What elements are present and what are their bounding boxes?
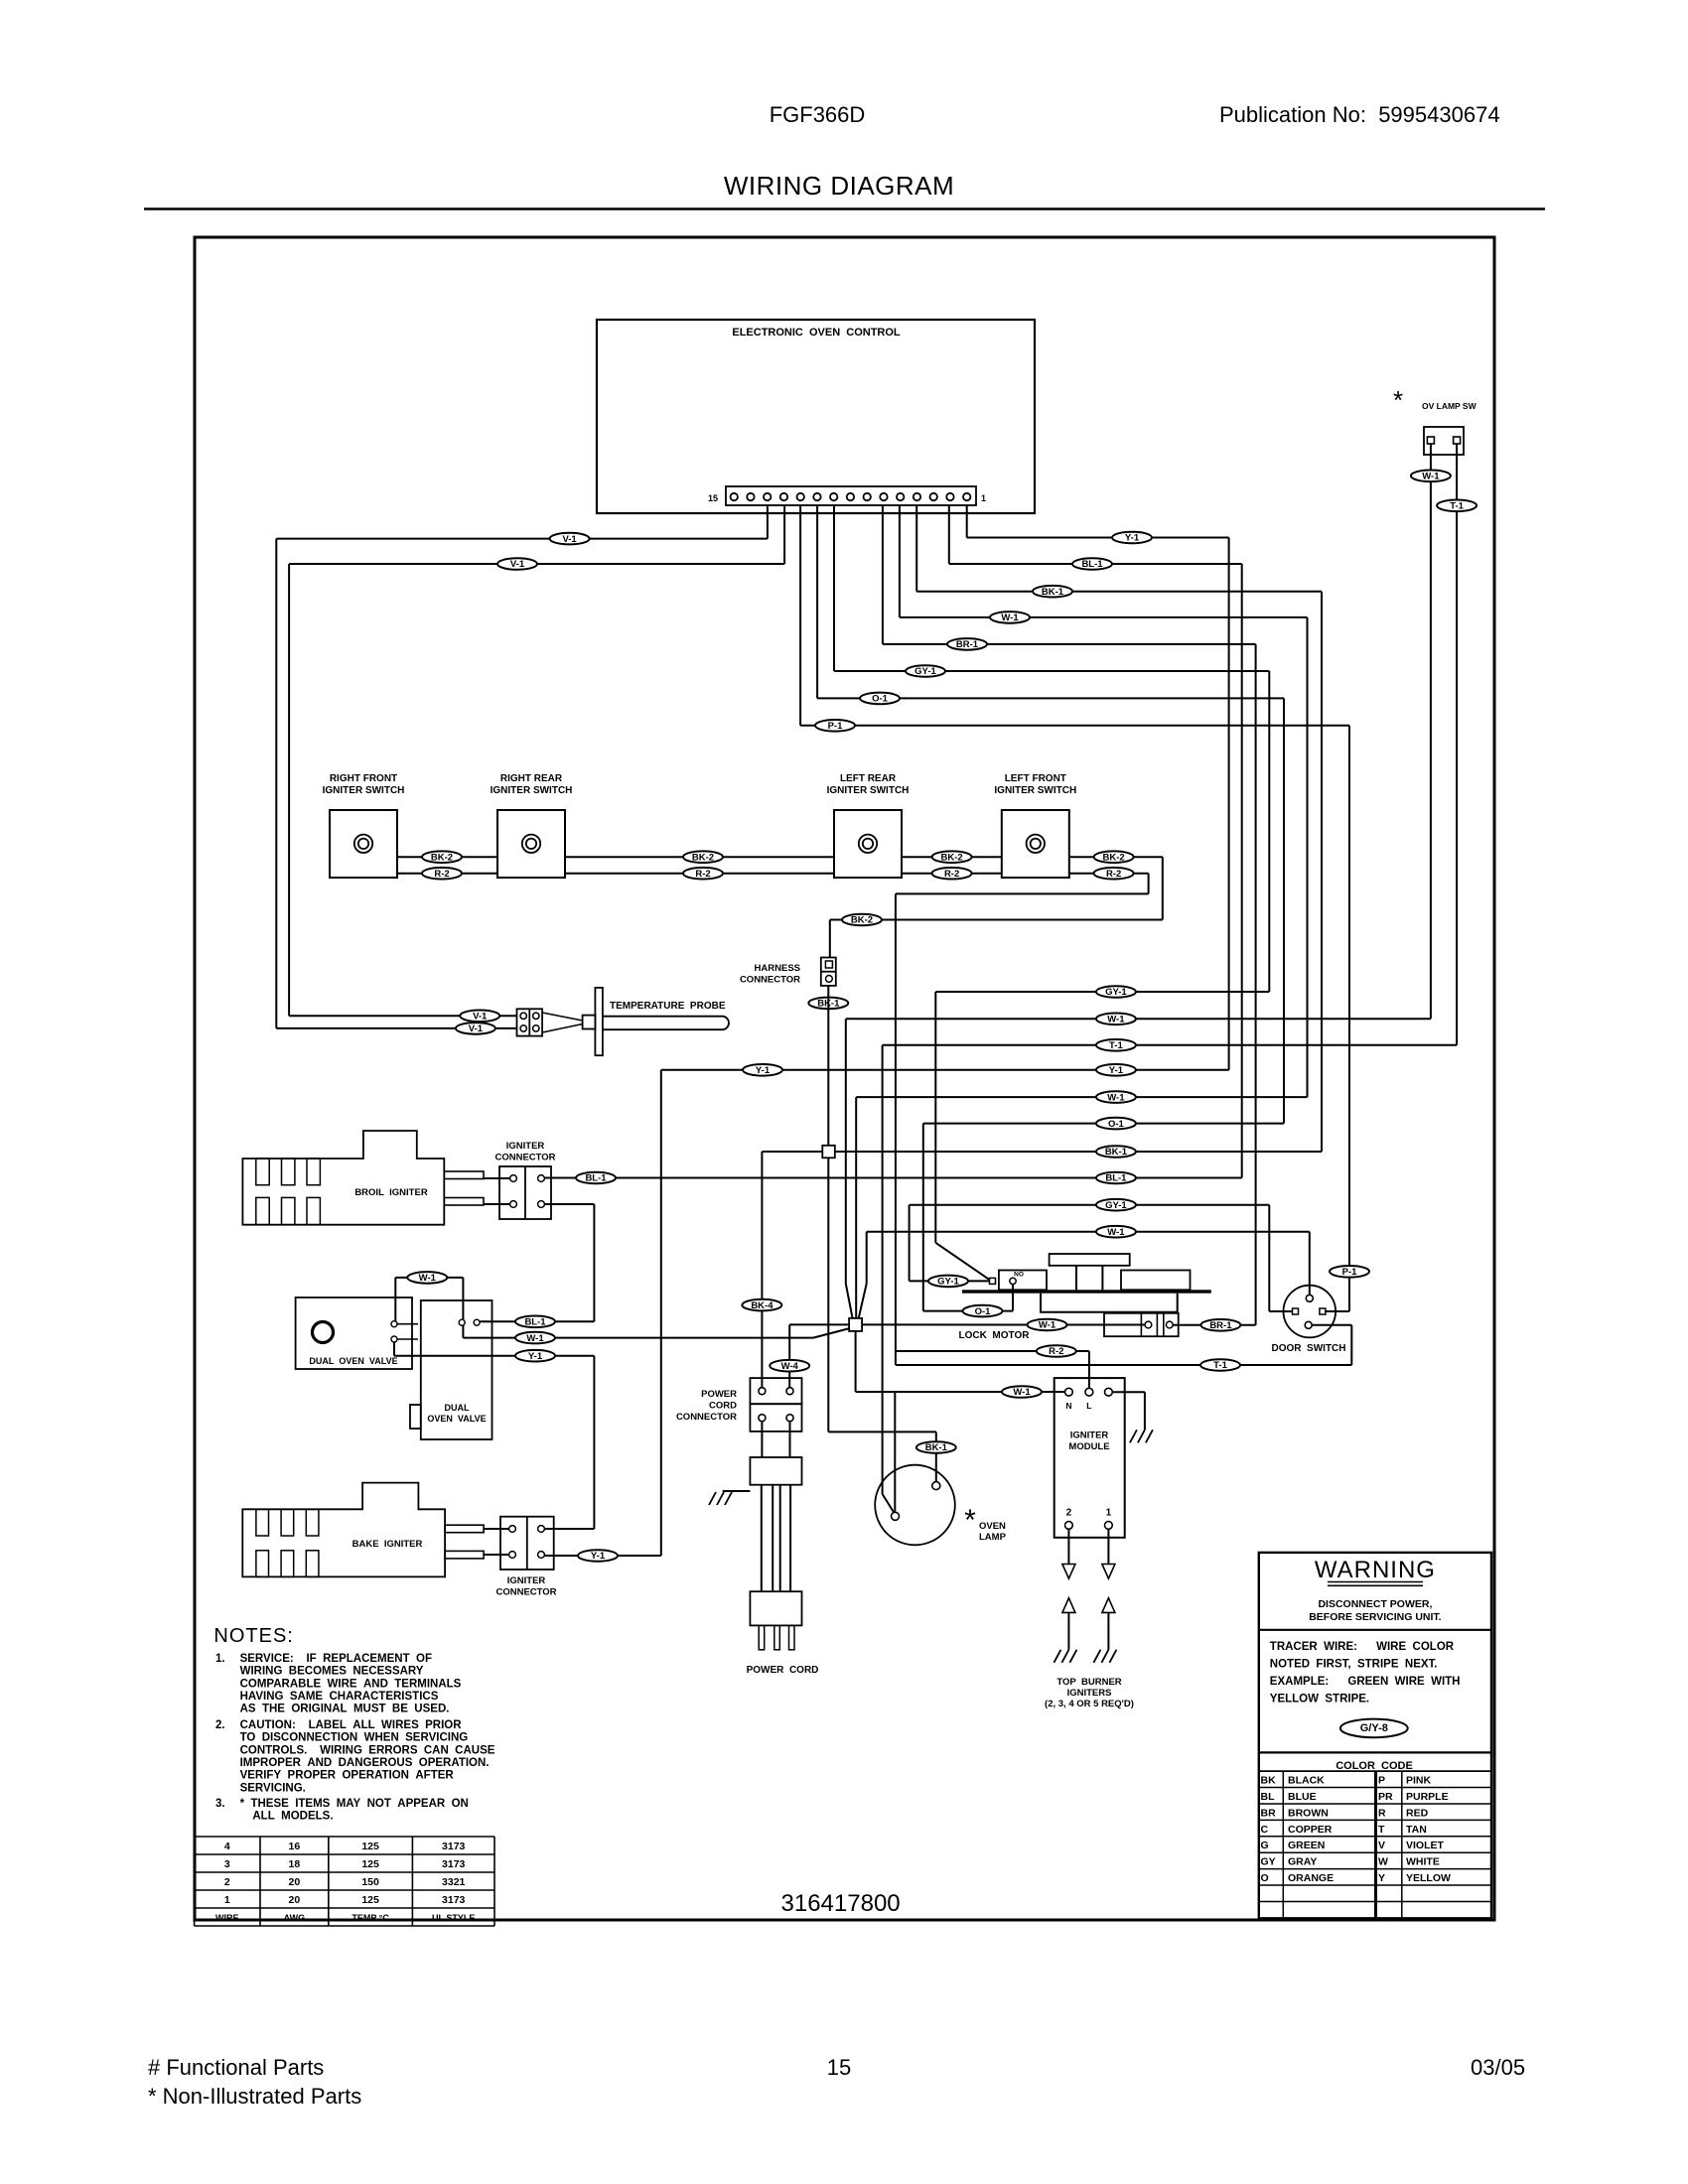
svg-text:1: 1 <box>981 493 986 503</box>
svg-text:Y: Y <box>1378 1872 1385 1884</box>
svg-text:* Non-Illustrated Parts: * Non-Illustrated Parts <box>148 2084 361 2109</box>
svg-text:BK-1: BK-1 <box>1042 587 1064 598</box>
svg-text:P-1: P-1 <box>1342 1267 1358 1278</box>
svg-text:TOP BURNER: TOP BURNER <box>1056 1677 1121 1688</box>
svg-text:TRACER WIRE: WIRE COLOR: TRACER WIRE: WIRE COLOR <box>1270 1641 1455 1653</box>
svg-text:O-1: O-1 <box>975 1306 992 1317</box>
svg-text:BK-2: BK-2 <box>851 915 873 926</box>
svg-text:W-1: W-1 <box>1039 1320 1056 1331</box>
svg-text:G/Y-8: G/Y-8 <box>1360 1722 1388 1734</box>
svg-text:20: 20 <box>289 1894 301 1906</box>
svg-text:R-2: R-2 <box>434 869 449 880</box>
svg-text:IGNITER: IGNITER <box>506 1141 545 1152</box>
svg-text:ORANGE: ORANGE <box>1288 1872 1334 1884</box>
svg-text:TAN: TAN <box>1406 1824 1427 1836</box>
svg-text:VIOLET: VIOLET <box>1406 1840 1445 1851</box>
svg-text:T: T <box>1378 1824 1385 1836</box>
svg-text:V-1: V-1 <box>510 559 525 570</box>
svg-text:Y-1: Y-1 <box>528 1351 543 1362</box>
svg-text:C: C <box>1261 1824 1269 1836</box>
svg-text:ALL MODELS.: ALL MODELS. <box>240 1811 334 1823</box>
svg-text:CONNECTOR: CONNECTOR <box>676 1412 737 1423</box>
svg-text:T-1: T-1 <box>1109 1040 1123 1051</box>
svg-text:P-1: P-1 <box>828 721 844 732</box>
svg-text:BK: BK <box>1261 1775 1277 1787</box>
svg-text:R-2: R-2 <box>1106 869 1121 880</box>
svg-text:* THESE ITEMS MAY NOT APP: * THESE ITEMS MAY NOT APPEAR ON <box>240 1798 469 1810</box>
svg-text:T-1: T-1 <box>1213 1360 1227 1371</box>
svg-text:W: W <box>1378 1856 1388 1868</box>
svg-text:NO: NO <box>1014 1272 1024 1279</box>
svg-text:BL-1: BL-1 <box>524 1317 546 1328</box>
svg-text:BK-2: BK-2 <box>692 852 714 863</box>
svg-text:N: N <box>1065 1401 1071 1411</box>
svg-text:2: 2 <box>224 1876 230 1888</box>
svg-text:GY-1: GY-1 <box>1105 987 1127 998</box>
svg-text:L: L <box>1086 1401 1091 1411</box>
svg-text:R-2: R-2 <box>1049 1346 1063 1357</box>
svg-text:LOCK MOTOR: LOCK MOTOR <box>959 1330 1031 1341</box>
svg-text:CORD: CORD <box>709 1401 737 1412</box>
svg-text:(2, 3, 4 OR 5 REQ'D): (2, 3, 4 OR 5 REQ'D) <box>1045 1699 1134 1709</box>
svg-text:LAMP: LAMP <box>979 1532 1007 1543</box>
svg-text:BROIL IGNITER: BROIL IGNITER <box>354 1187 428 1198</box>
svg-text:IGNITER: IGNITER <box>1070 1431 1109 1441</box>
svg-text:*: * <box>964 1504 976 1537</box>
svg-text:WIRE: WIRE <box>215 1913 239 1923</box>
svg-text:OVEN VALVE: OVEN VALVE <box>427 1414 486 1424</box>
svg-text:Y-1: Y-1 <box>1109 1065 1124 1076</box>
svg-text:IGNITER SWITCH: IGNITER SWITCH <box>491 785 573 796</box>
svg-text:BK-2: BK-2 <box>941 852 963 863</box>
svg-text:BROWN: BROWN <box>1288 1807 1329 1819</box>
svg-text:3321: 3321 <box>442 1876 466 1888</box>
svg-text:UL STYLE: UL STYLE <box>432 1913 475 1923</box>
svg-text:W-1: W-1 <box>526 1333 544 1344</box>
svg-text:BK-1: BK-1 <box>925 1442 948 1453</box>
svg-text:1: 1 <box>224 1894 230 1906</box>
svg-text:W-1: W-1 <box>1107 1092 1125 1103</box>
svg-text:BR-1: BR-1 <box>1209 1320 1232 1331</box>
svg-text:HAVING SAME CHARACTERISTICS: HAVING SAME CHARACTERISTICS <box>240 1691 439 1703</box>
svg-text:R: R <box>1378 1807 1386 1819</box>
svg-text:BR-1: BR-1 <box>956 639 979 650</box>
svg-text:HARNESS: HARNESS <box>755 963 800 974</box>
svg-text:125: 125 <box>361 1894 379 1906</box>
svg-text:3173: 3173 <box>442 1858 466 1870</box>
svg-text:BK-1: BK-1 <box>1105 1147 1128 1158</box>
svg-text:LEFT FRONT: LEFT FRONT <box>1005 773 1066 784</box>
svg-text:DISCONNECT POWER,: DISCONNECT POWER, <box>1318 1598 1432 1610</box>
svg-text:IGNITERS: IGNITERS <box>1067 1688 1112 1699</box>
svg-text:COMPARABLE WIRE AND TERMINA: COMPARABLE WIRE AND TERMINALS <box>240 1678 462 1690</box>
svg-text:*: * <box>1393 385 1403 415</box>
svg-text:20: 20 <box>289 1876 301 1888</box>
svg-text:T-1: T-1 <box>1450 501 1464 512</box>
svg-text:BK-2: BK-2 <box>1103 852 1125 863</box>
svg-text:IGNITER SWITCH: IGNITER SWITCH <box>994 785 1076 796</box>
svg-text:1.: 1. <box>215 1653 225 1665</box>
svg-text:GRAY: GRAY <box>1288 1856 1317 1868</box>
svg-text:AWG: AWG <box>284 1913 306 1923</box>
svg-text:NOTES:: NOTES: <box>213 1625 293 1647</box>
svg-text:BK-2: BK-2 <box>431 852 453 863</box>
svg-text:WIRING BECOMES NECESSARY: WIRING BECOMES NECESSARY <box>240 1666 424 1678</box>
svg-text:Y-1: Y-1 <box>756 1065 771 1076</box>
svg-text:POWER: POWER <box>701 1389 737 1400</box>
svg-text:CONNECTOR: CONNECTOR <box>740 975 800 986</box>
svg-text:R-2: R-2 <box>944 869 959 880</box>
svg-text:SERVICE: IF REPLACEMENT O: SERVICE: IF REPLACEMENT OF <box>240 1653 432 1665</box>
svg-text:3: 3 <box>224 1858 230 1870</box>
svg-text:PINK: PINK <box>1406 1775 1432 1787</box>
svg-text:O: O <box>1261 1872 1269 1884</box>
svg-text:COPPER: COPPER <box>1288 1824 1333 1836</box>
svg-text:3.: 3. <box>215 1798 225 1810</box>
svg-text:O-1: O-1 <box>872 694 889 705</box>
svg-text:IGNITER SWITCH: IGNITER SWITCH <box>827 785 910 796</box>
svg-text:# Functional Parts: # Functional Parts <box>148 2055 324 2080</box>
svg-text:BLACK: BLACK <box>1288 1775 1325 1787</box>
svg-text:PURPLE: PURPLE <box>1406 1791 1449 1803</box>
svg-text:WIRING DIAGRAM: WIRING DIAGRAM <box>724 171 954 201</box>
svg-text:125: 125 <box>361 1841 379 1852</box>
svg-text:AS THE ORIGINAL MUST BE U: AS THE ORIGINAL MUST BE USED. <box>240 1704 450 1715</box>
svg-text:IGNITER SWITCH: IGNITER SWITCH <box>323 785 405 796</box>
svg-text:COLOR CODE: COLOR CODE <box>1336 1760 1413 1772</box>
svg-text:W-1: W-1 <box>419 1273 437 1284</box>
svg-text:BL: BL <box>1261 1791 1276 1803</box>
svg-text:EXAMPLE: GREEN WIRE WIT: EXAMPLE: GREEN WIRE WITH <box>1270 1676 1461 1688</box>
svg-text:BAKE IGNITER: BAKE IGNITER <box>352 1539 423 1550</box>
svg-text:NOTED FIRST, STRIPE NEXT.: NOTED FIRST, STRIPE NEXT. <box>1270 1658 1438 1670</box>
svg-text:DUAL: DUAL <box>445 1403 470 1413</box>
svg-text:W-1: W-1 <box>1001 613 1019 623</box>
svg-text:LEFT REAR: LEFT REAR <box>840 773 897 784</box>
svg-text:W-1: W-1 <box>1422 472 1440 482</box>
svg-text:P: P <box>1378 1775 1385 1787</box>
svg-text:125: 125 <box>361 1858 379 1870</box>
svg-text:RED: RED <box>1406 1807 1429 1819</box>
svg-text:ELECTRONIC OVEN CONTROL: ELECTRONIC OVEN CONTROL <box>732 327 901 339</box>
svg-text:GREEN: GREEN <box>1288 1840 1325 1851</box>
svg-text:TEMPERATURE PROBE: TEMPERATURE PROBE <box>610 1001 726 1012</box>
svg-text:Publication No: 5995430674: Publication No: 5995430674 <box>1219 102 1500 127</box>
svg-text:IGNITER: IGNITER <box>507 1575 546 1586</box>
svg-text:15: 15 <box>708 493 718 503</box>
svg-text:Y-1: Y-1 <box>1125 533 1140 544</box>
svg-text:BEFORE SERVICING UNIT.: BEFORE SERVICING UNIT. <box>1309 1611 1441 1623</box>
svg-text:DOOR SWITCH: DOOR SWITCH <box>1272 1343 1346 1354</box>
svg-text:TO DISCONNECTION WHEN SERVI: TO DISCONNECTION WHEN SERVICING <box>240 1732 469 1744</box>
svg-text:1: 1 <box>1106 1508 1112 1519</box>
svg-text:18: 18 <box>289 1858 301 1870</box>
svg-text:PR: PR <box>1378 1791 1393 1803</box>
svg-text:W-1: W-1 <box>1107 1015 1125 1025</box>
svg-text:16: 16 <box>289 1841 301 1852</box>
svg-text:316417800: 316417800 <box>781 1890 901 1917</box>
svg-text:CONNECTOR: CONNECTOR <box>495 1587 556 1598</box>
svg-text:2: 2 <box>1066 1508 1072 1519</box>
svg-text:O-1: O-1 <box>1108 1119 1125 1130</box>
svg-text:RIGHT REAR: RIGHT REAR <box>500 773 563 784</box>
svg-text:V: V <box>1378 1840 1385 1851</box>
svg-text:IMPROPER AND DANGEROUS OPER: IMPROPER AND DANGEROUS OPERATION. <box>240 1757 490 1769</box>
svg-text:CONTROLS. WIRING ERRORS C: CONTROLS. WIRING ERRORS CAN CAUSE <box>240 1744 495 1756</box>
svg-text:V-1: V-1 <box>473 1012 488 1023</box>
svg-text:DUAL OVEN VALVE: DUAL OVEN VALVE <box>309 1356 397 1366</box>
svg-text:BL-1: BL-1 <box>585 1173 607 1184</box>
svg-text:GY-1: GY-1 <box>937 1277 959 1288</box>
svg-text:MODULE: MODULE <box>1068 1441 1109 1452</box>
svg-text:3173: 3173 <box>442 1894 466 1906</box>
svg-text:W-1: W-1 <box>1013 1387 1031 1398</box>
svg-text:V-1: V-1 <box>469 1024 484 1034</box>
svg-text:G: G <box>1261 1840 1269 1851</box>
svg-text:YELLOW: YELLOW <box>1406 1872 1451 1884</box>
svg-text:VERIFY PROPER OPERATION AFT: VERIFY PROPER OPERATION AFTER <box>240 1770 455 1782</box>
svg-text:W-4: W-4 <box>781 1361 799 1372</box>
svg-text:WHITE: WHITE <box>1406 1856 1440 1868</box>
svg-text:RIGHT FRONT: RIGHT FRONT <box>330 773 397 784</box>
svg-text:BL-1: BL-1 <box>1081 559 1103 570</box>
svg-text:GY-1: GY-1 <box>1105 1200 1127 1211</box>
svg-text:POWER CORD: POWER CORD <box>747 1665 819 1676</box>
svg-text:W-1: W-1 <box>1107 1227 1125 1238</box>
svg-text:4: 4 <box>224 1841 230 1852</box>
svg-text:GY-1: GY-1 <box>914 666 936 677</box>
svg-text:150: 150 <box>361 1876 379 1888</box>
svg-text:BLUE: BLUE <box>1288 1791 1317 1803</box>
svg-text:BK-4: BK-4 <box>751 1300 774 1311</box>
svg-text:WARNING: WARNING <box>1315 1557 1436 1583</box>
svg-text:2.: 2. <box>215 1719 225 1731</box>
svg-text:V-1: V-1 <box>562 534 577 545</box>
svg-text:SERVICING.: SERVICING. <box>240 1782 306 1794</box>
svg-text:TEMP °C: TEMP °C <box>352 1913 389 1923</box>
svg-text:R-2: R-2 <box>695 869 710 880</box>
svg-text:YELLOW STRIPE.: YELLOW STRIPE. <box>1270 1693 1369 1705</box>
svg-text:03/05: 03/05 <box>1471 2055 1525 2080</box>
svg-text:3173: 3173 <box>442 1841 466 1852</box>
svg-text:CAUTION: LABEL ALL WIRES: CAUTION: LABEL ALL WIRES PRIOR <box>240 1719 463 1731</box>
svg-text:Y-1: Y-1 <box>591 1551 606 1562</box>
svg-text:OVEN: OVEN <box>979 1521 1006 1532</box>
svg-text:BR: BR <box>1261 1807 1277 1819</box>
svg-text:FGF366D: FGF366D <box>770 102 866 127</box>
svg-text:OV LAMP SW: OV LAMP SW <box>1422 401 1477 411</box>
svg-text:15: 15 <box>827 2055 851 2080</box>
svg-text:BL-1: BL-1 <box>1105 1173 1127 1184</box>
svg-text:CONNECTOR: CONNECTOR <box>494 1153 555 1163</box>
svg-text:GY: GY <box>1261 1856 1276 1868</box>
